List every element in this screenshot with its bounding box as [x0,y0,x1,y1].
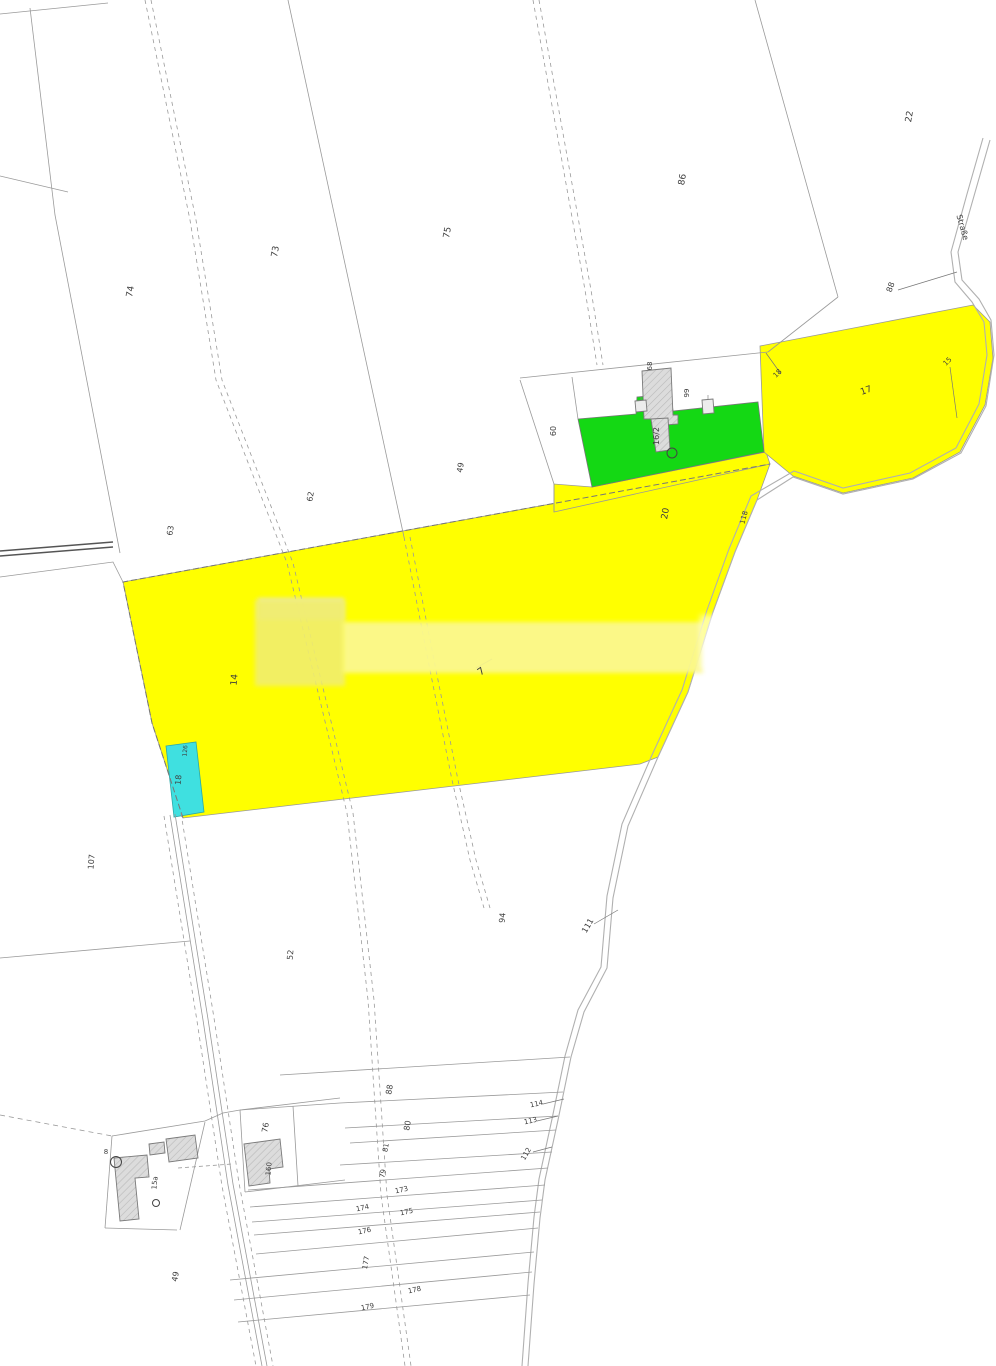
parcel-label: 86 [677,173,689,186]
parcel-label: 176 [357,1226,372,1237]
boundary-left-mid [0,562,123,582]
building-farmhouse-L [114,1155,149,1221]
parcel-label: 73 [270,245,282,258]
parcel-label: 174 [355,1203,370,1214]
boundary-left-upper [30,8,120,553]
parcel-label: 8 [104,1148,108,1156]
leader-114 [543,1099,564,1104]
farm-boundary-dash [0,1115,112,1136]
parcel-yellow-northeast-17 [760,305,993,493]
parcel-label: 112 [519,1146,533,1162]
parcel-label: 68 [646,362,654,371]
building-shed-2 [702,399,714,414]
boundary-topleft-1 [0,3,108,14]
building-farm2 [244,1139,283,1186]
parcel-label: 49 [170,1271,181,1283]
track-farm-solid-a [170,815,262,1366]
parcel-label: 179 [360,1302,375,1313]
track-farm-dash-r [181,813,273,1366]
point-symbol-small [153,1200,160,1207]
parcel-label: 52 [286,949,296,960]
parcel-label: 178 [407,1285,422,1296]
leader-112 [533,1147,552,1152]
track-farm-solid-b [175,814,267,1366]
parcel-label: 63 [165,525,176,537]
parcel-label: 18 [174,774,184,785]
boundary-73-75 [288,0,404,537]
farm-bottom [105,1228,177,1230]
parcel-label: 99 [683,389,691,398]
cadastral-map-canvas: 747375862288Straße6899604962631718152011… [0,0,996,1366]
strip-4 [350,1130,556,1143]
redaction-blur-left [255,600,345,686]
strip-2 [240,1092,563,1110]
redaction-blur-tail [700,615,764,670]
building-annex [149,1142,165,1155]
strip-13 [238,1295,530,1322]
parcel-label: 15a [150,1176,159,1190]
track-top-dashed-b [539,0,603,365]
building-house-16-2 [642,368,678,426]
parcel-label: 177 [361,1255,371,1270]
farm-inner-dash [178,1164,232,1168]
boundary-86-22 [755,0,838,297]
building-shed-1 [635,400,647,412]
building-barn-top [166,1135,198,1162]
strip-10 [256,1228,538,1254]
parcel-label: 74 [125,285,137,298]
parcel-label: 126 [182,745,190,757]
parcel-label: 173 [394,1185,409,1196]
leader-88 [898,272,957,290]
road-edge-dark-b [0,547,113,556]
parcel-label: 20 [660,507,672,520]
parcel-label: 80 [402,1120,413,1132]
parcel-label: 107 [86,854,96,870]
parcel-label: 76 [260,1122,271,1134]
track-top-dashed-a [533,0,597,365]
strip-12 [234,1272,532,1300]
boundary-left-low [0,941,190,958]
parcel-label: 14 [230,673,241,686]
farm-top [112,1110,240,1136]
farm2-mid [293,1106,298,1186]
parcel-label: 16/2 [652,427,661,445]
cadastral-map-page: 747375862288Straße6899604962631718152011… [0,0,996,1366]
parcel-label: 88 [384,1084,395,1096]
parcel-label: 75 [442,226,454,239]
parcel-label: 175 [399,1207,414,1218]
parcel-label: 22 [904,110,916,123]
parcel-label: 114 [529,1099,544,1110]
parcel-label: 111 [580,917,595,935]
parcel-label: 81 [381,1143,390,1153]
parcel-label: 60 [549,426,558,436]
parcel-label: 79 [378,1169,387,1179]
track-farm-dash-l [164,816,256,1366]
farm2-left [240,1110,245,1192]
parcel-label: 88 [885,281,897,294]
redaction-blur-long [343,622,703,673]
boundary-topleft-2 [0,176,68,192]
parcel-label: 160 [264,1162,273,1176]
boundary-green-left-ext [572,377,578,419]
strip-1 [280,1057,570,1075]
road-edge-dark-a [0,542,113,551]
parcel-label: 62 [305,491,316,503]
parcel-label: 94 [498,912,508,923]
parcel-label: 49 [455,462,466,474]
parcel-label: 113 [523,1116,538,1127]
